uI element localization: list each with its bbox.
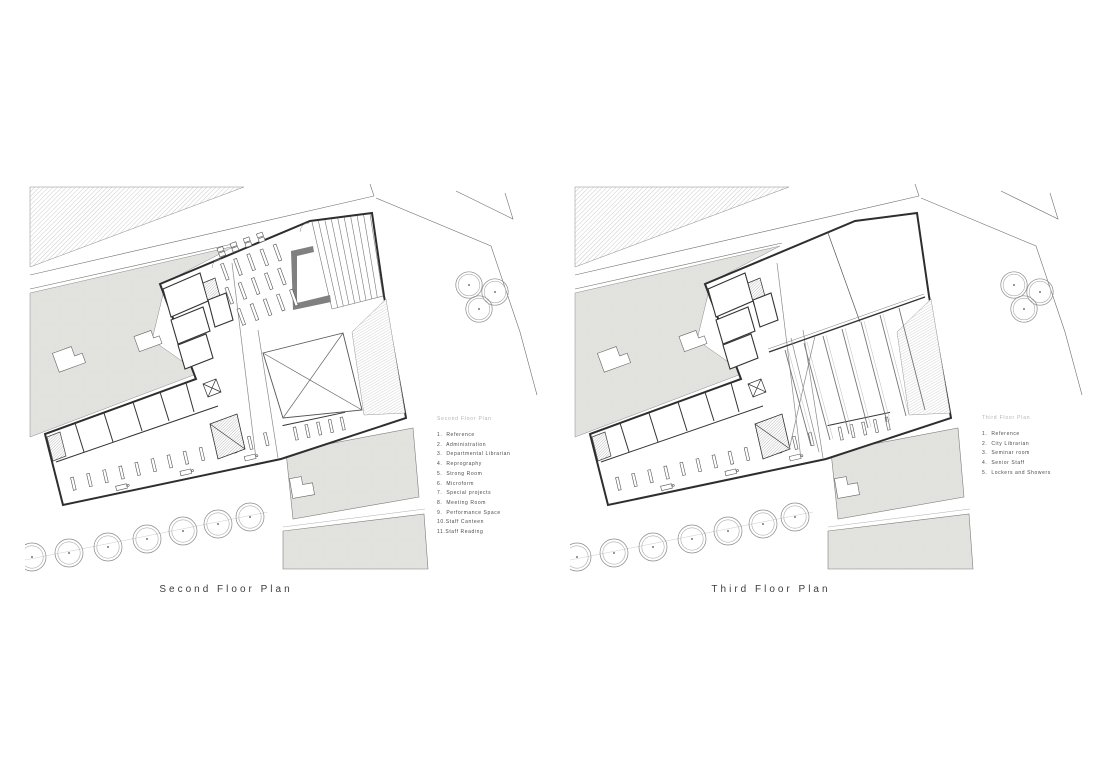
legend-item: 4. Senior Staff (982, 459, 1092, 469)
legend-item: 2. City Librarian (982, 440, 1092, 450)
legend-item-list: 1. Reference2. City Librarian3. Seminar … (982, 430, 1092, 479)
legend-title: Third Floor Plan (982, 415, 1092, 421)
legend-title: Second Floor Plan (437, 416, 547, 422)
legend-item: 5. Strong Room (437, 470, 547, 480)
legend-item: 4. Reprography (437, 460, 547, 470)
legend-item: 1. Reference (982, 430, 1092, 440)
legend-item: 3. Departmental Librarian (437, 450, 547, 460)
legend-item: 7. Special projects (437, 489, 547, 499)
second-floor-caption: Second Floor Plan (121, 584, 331, 595)
legend-item: 1. Reference (437, 431, 547, 441)
third-floor-caption: Third Floor Plan (666, 584, 876, 595)
legend-item: 3. Seminar room (982, 449, 1092, 459)
legend-item-list: 1. Reference2. Administration3. Departme… (437, 431, 547, 538)
page: Second Floor Plan Third Floor Plan Secon… (0, 0, 1100, 778)
legend-item: 11.Staff Reading (437, 528, 547, 538)
legend-item: 2. Administration (437, 441, 547, 451)
legend-item: 5. Lockers and Showers (982, 469, 1092, 479)
legend-item: 10.Staff Canteen (437, 518, 547, 528)
third-floor-legend: Third Floor Plan 1. Reference2. City Lib… (982, 415, 1092, 479)
legend-item: 9. Performance Space (437, 509, 547, 519)
second-floor-legend: Second Floor Plan 1. Reference2. Adminis… (437, 416, 547, 538)
legend-item: 8. Meeting Room (437, 499, 547, 509)
legend-item: 6. Microform (437, 480, 547, 490)
third-floor-plan-drawing (570, 160, 1085, 580)
